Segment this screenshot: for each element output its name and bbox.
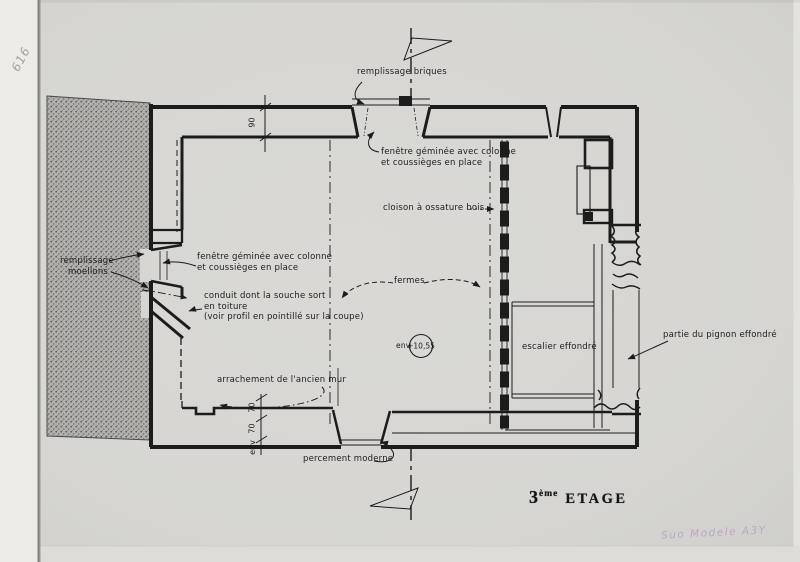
window-top-geminee bbox=[352, 96, 430, 137]
collapsed-gable bbox=[594, 225, 641, 414]
timber-partition bbox=[501, 140, 509, 430]
title-floor-suffix: ème bbox=[539, 489, 558, 499]
dimension-top bbox=[260, 95, 271, 152]
label-fermes: fermes bbox=[394, 276, 425, 287]
label-line: et coussièges en place bbox=[197, 263, 332, 274]
label-cloison: cloison à ossature bois bbox=[383, 203, 484, 214]
label-fenetre-geminee-top: fenêtre géminée avec colonne et coussièg… bbox=[381, 147, 516, 168]
title-floor-number: 3 bbox=[529, 487, 539, 507]
level-marker-value: +10,55 bbox=[407, 341, 435, 350]
label-pignon: partie du pignon effondré bbox=[663, 330, 777, 341]
label-remplissage-briques: remplissage briques bbox=[357, 67, 447, 78]
label-percement: percement moderne bbox=[303, 454, 393, 465]
label-line: en toiture bbox=[204, 302, 364, 313]
dimension-env-prefix: env bbox=[248, 440, 257, 455]
title-floor-word: ETAGE bbox=[565, 491, 627, 507]
dimension-70-lower: 70 bbox=[248, 423, 257, 433]
stair-outline bbox=[505, 244, 610, 430]
label-remplissage-moellons: remplissage moellons bbox=[60, 256, 114, 277]
label-escalier: escalier effondré bbox=[522, 342, 597, 353]
label-conduit: conduit dont la souche sort en toiture (… bbox=[204, 291, 364, 323]
dimension-90: 90 bbox=[248, 117, 257, 127]
label-line: fenêtre géminée avec colonne bbox=[197, 252, 332, 263]
dimension-70-upper: 70 bbox=[248, 402, 257, 412]
chimney-top-right bbox=[577, 140, 612, 223]
label-line: fenêtre géminée avec colonne bbox=[381, 147, 516, 158]
label-line: (voir profil en pointillé sur la coupe) bbox=[204, 312, 364, 323]
label-line: moellons bbox=[68, 267, 114, 278]
label-line: conduit dont la souche sort bbox=[204, 291, 364, 302]
label-line: et coussièges en place bbox=[381, 158, 516, 169]
label-line: remplissage bbox=[60, 256, 114, 267]
title-floor: 3èmeETAGE bbox=[529, 487, 628, 508]
plan-sheet: remplissage briques fenêtre géminée avec… bbox=[0, 0, 800, 562]
slot-top-wall bbox=[546, 107, 561, 137]
label-arrachement: arrachement de l'ancien mur bbox=[217, 375, 346, 386]
label-fenetre-geminee-left: fenêtre géminée avec colonne et coussièg… bbox=[197, 252, 332, 273]
